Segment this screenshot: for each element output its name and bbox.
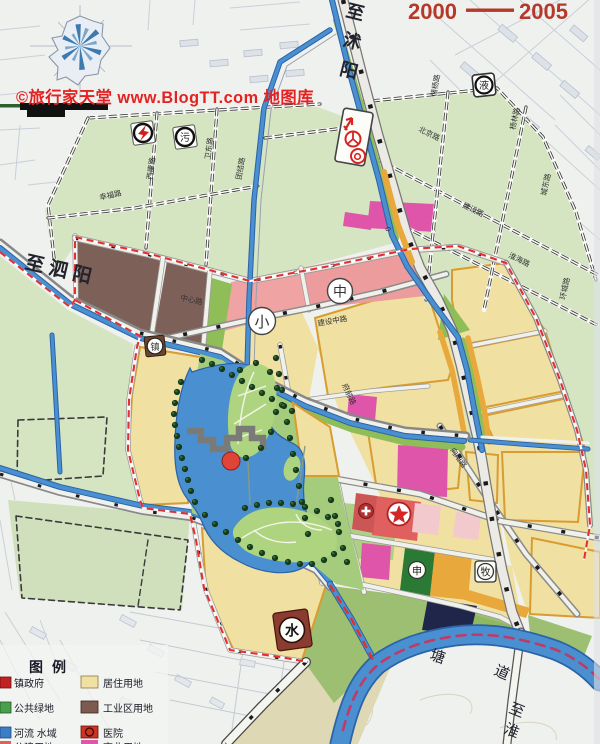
svg-text:申: 申 <box>412 565 422 578</box>
svg-text:中: 中 <box>333 284 347 300</box>
svg-text:镇: 镇 <box>150 341 159 352</box>
svg-text:污: 污 <box>180 132 190 144</box>
svg-text:小: 小 <box>254 314 269 331</box>
svg-text:图例: 图例 <box>29 659 75 675</box>
svg-text:工业区用地: 工业区用地 <box>103 702 153 715</box>
svg-text:液: 液 <box>479 79 489 92</box>
svg-text:牧: 牧 <box>481 566 491 579</box>
svg-text:2005: 2005 <box>519 0 568 24</box>
svg-text:©旅行家天堂 www.BlogTT.com 地图库: ©旅行家天堂 www.BlogTT.com 地图库 <box>16 88 314 107</box>
svg-text:2000: 2000 <box>408 0 457 24</box>
svg-text:医院: 医院 <box>103 727 123 740</box>
svg-text:镇政府: 镇政府 <box>14 677 44 690</box>
svg-text:居住用地: 居住用地 <box>103 677 143 690</box>
svg-text:水: 水 <box>285 623 300 639</box>
svg-text:公共绿地: 公共绿地 <box>14 702 54 715</box>
svg-text:河流 水域: 河流 水域 <box>14 727 57 740</box>
